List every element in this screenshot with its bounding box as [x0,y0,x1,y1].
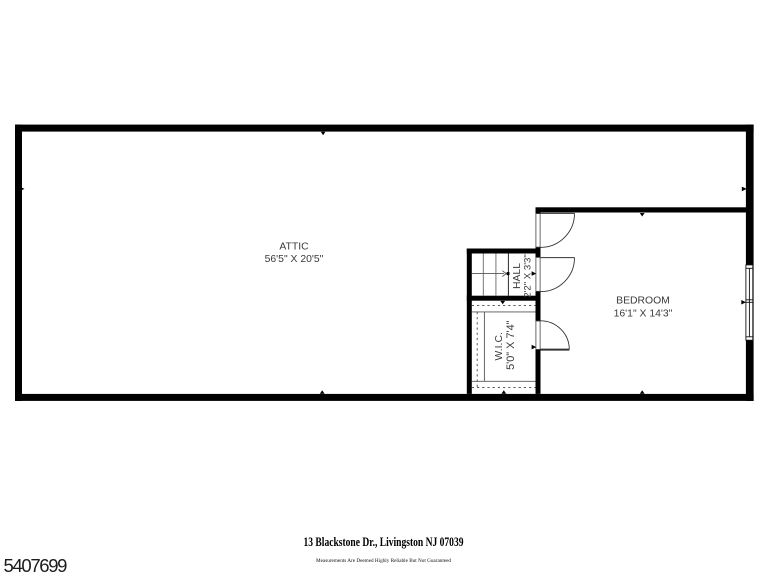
svg-text:56'5" X 20'5": 56'5" X 20'5" [265,254,324,265]
svg-text:13 Blackstone Dr., Livingston: 13 Blackstone Dr., Livingston NJ 07039 [304,535,464,549]
svg-text:BEDROOM: BEDROOM [616,295,670,306]
svg-text:2'2" X 3'3": 2'2" X 3'3" [523,254,534,298]
svg-text:HALL: HALL [512,263,523,289]
svg-text:16'1" X 14'3": 16'1" X 14'3" [614,309,673,320]
svg-text:W.I.C.: W.I.C. [494,332,505,360]
svg-text:ATTIC: ATTIC [279,242,309,253]
svg-text:5'0" X 7'4": 5'0" X 7'4" [505,320,517,370]
svg-text:Measurements Are Deemed Highly: Measurements Are Deemed Highly Reliable … [316,558,451,564]
svg-text:5407699: 5407699 [4,555,68,576]
